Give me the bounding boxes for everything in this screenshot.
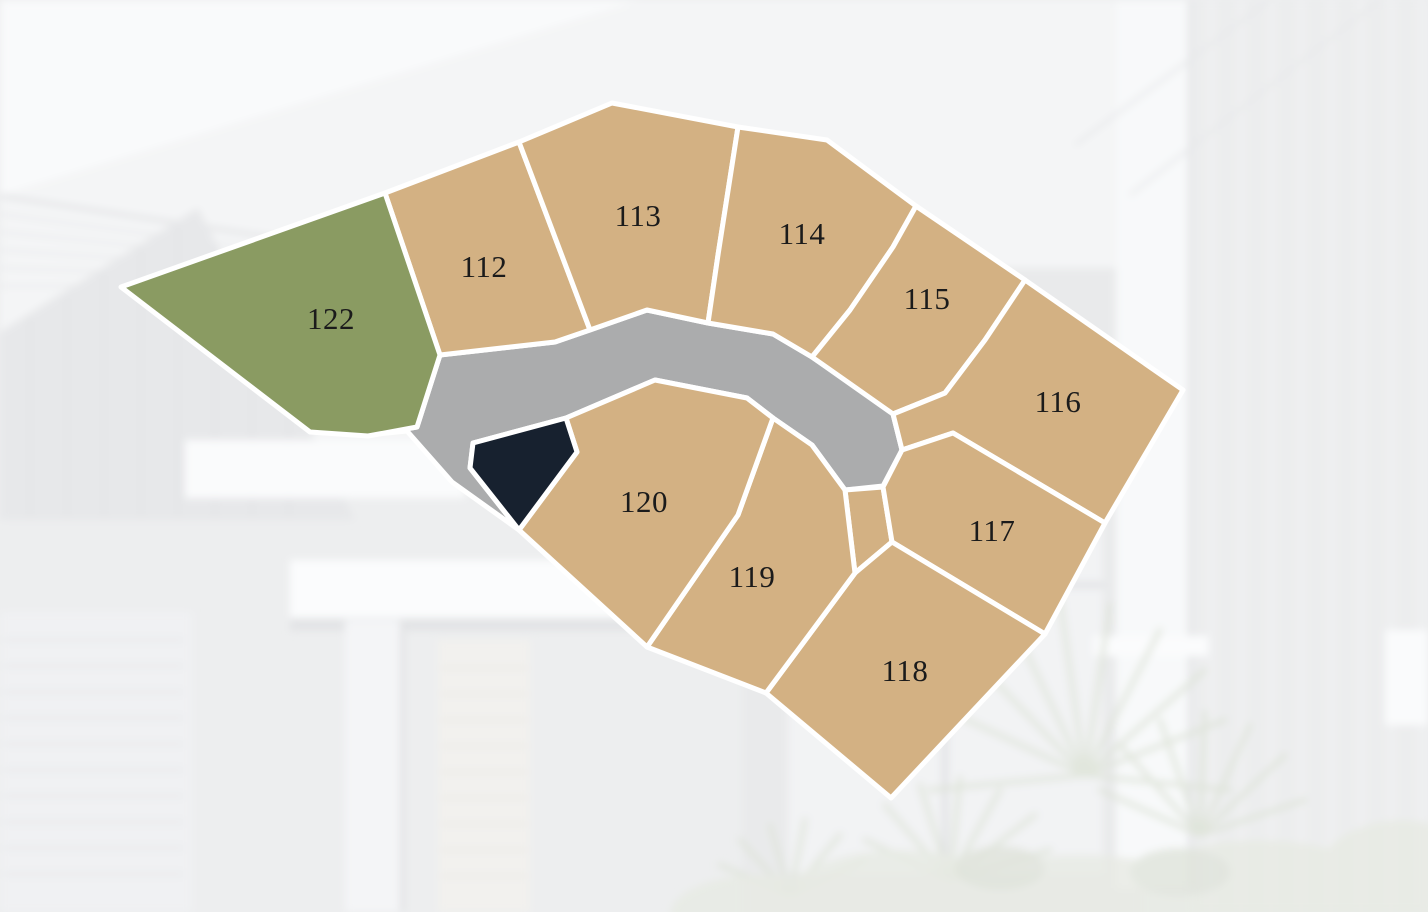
pillar xyxy=(345,620,403,912)
pillar-edge xyxy=(400,620,405,912)
site-plan-page: 112 113 114 115 116 117 118 119 120 122 xyxy=(0,0,1428,912)
planter xyxy=(1385,630,1428,725)
roller-door xyxy=(438,640,530,912)
wall-seam xyxy=(1188,0,1192,888)
garage-door xyxy=(0,612,192,912)
